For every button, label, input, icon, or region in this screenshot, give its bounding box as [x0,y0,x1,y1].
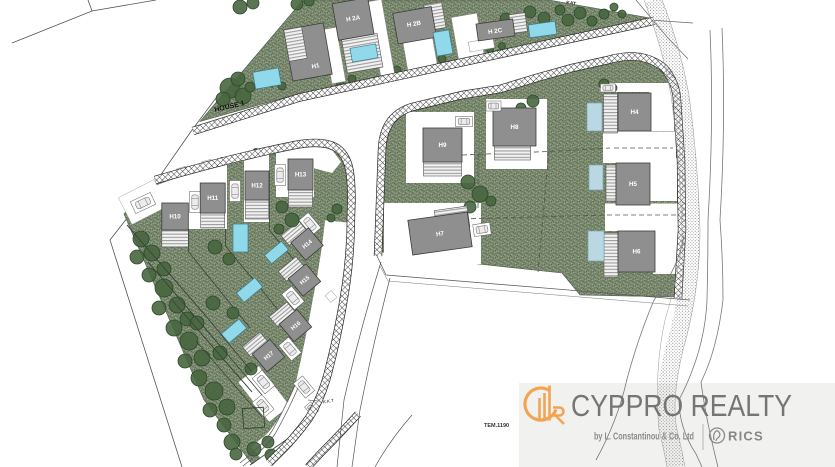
svg-text:by L. Constantinou & Co. Ltd: by L. Constantinou & Co. Ltd [594,431,694,443]
svg-text:H12: H12 [251,183,263,190]
svg-text:H6: H6 [633,249,641,256]
svg-text:H8: H8 [511,124,519,131]
svg-text:H7: H7 [436,230,445,238]
svg-text:CYPPRO REALTY: CYPPRO REALTY [571,388,792,423]
svg-text:RICS: RICS [728,429,764,444]
svg-text:TEM.1190: TEM.1190 [484,423,509,429]
svg-text:H4: H4 [631,109,639,116]
svg-text:H5: H5 [629,181,637,188]
svg-text:H10: H10 [169,214,181,221]
svg-text:H13: H13 [295,172,307,179]
svg-text:H11: H11 [207,195,219,202]
svg-text:H9: H9 [439,142,447,149]
